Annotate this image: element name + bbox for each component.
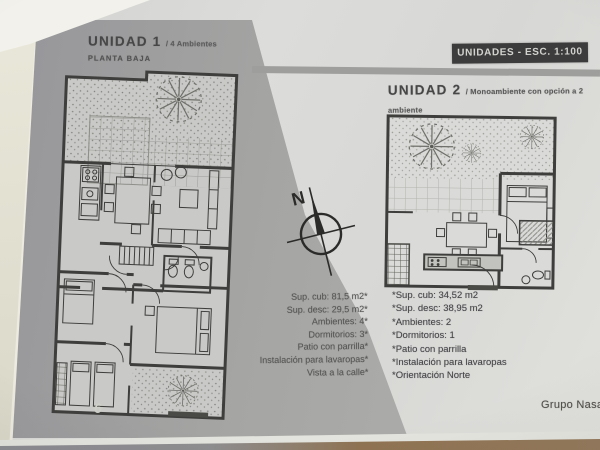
header-divider-bar	[252, 66, 600, 77]
unit2-floorplan	[382, 110, 560, 293]
unit2-spec-sup-cub: *Sup. cub: 34,52 m2	[392, 289, 507, 302]
unit1-floor-label: PLANTA BAJA	[88, 54, 217, 64]
unit2-deck-tiles	[387, 178, 500, 214]
page-number: 6	[94, 400, 102, 416]
unit1-spec-vista: Vista a la calle*	[170, 366, 368, 381]
unit2-specs: *Sup. cub: 34,52 m2 *Sup. desc: 38,95 m2…	[392, 289, 507, 383]
north-label: N	[289, 187, 306, 210]
unit2-side-patio	[386, 244, 410, 286]
photographed-plan-page: UNIDAD 1 / 4 Ambientes PLANTA BAJA Sup. …	[0, 0, 600, 450]
unit2-title: UNIDAD 2	[388, 82, 461, 98]
unit2-spec-patio: *Patio con parrilla	[392, 343, 507, 356]
unit2-spec-sup-desc: *Sup. desc: 38,95 m2	[392, 302, 507, 315]
unit1-specs: Sup. cub: 81,5 m2* Sup. desc: 29,5 m2* A…	[170, 290, 369, 380]
unit1-header: UNIDAD 1 / 4 Ambientes PLANTA BAJA	[88, 33, 217, 64]
unit2-spec-dormitorios: *Dormitorios: 1	[392, 329, 507, 342]
unit2-spec-orientacion: *Orientación Norte	[392, 369, 507, 382]
scale-badge: UNIDADES - ESC. 1:100	[452, 42, 588, 63]
unit1-title: UNIDAD 1	[88, 34, 161, 50]
unit2-garden	[387, 116, 555, 180]
unit2-spec-lavaropas: *Instalación para lavaropas	[392, 356, 507, 369]
footer-brand: Grupo Nasa	[541, 399, 600, 411]
unit2-spec-ambientes: *Ambientes: 2	[392, 316, 507, 329]
unit1-subtitle: / 4 Ambientes	[166, 39, 217, 48]
unit2-kitchen-counter	[424, 254, 502, 270]
